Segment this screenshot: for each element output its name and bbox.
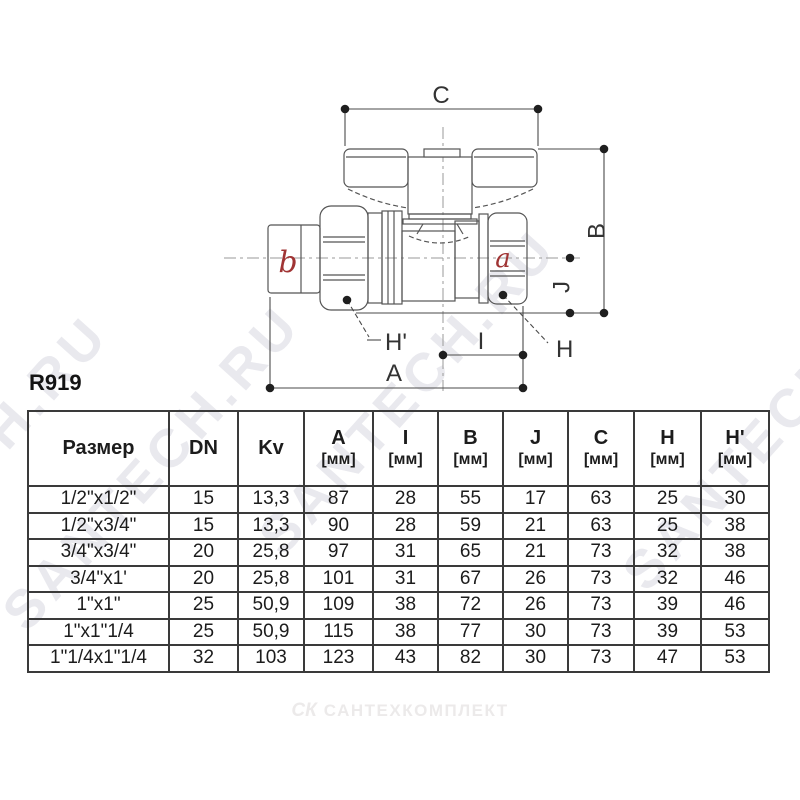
table-cell: 50,9 xyxy=(238,619,304,646)
table-cell: 30 xyxy=(503,619,568,646)
table-cell: 38 xyxy=(701,539,769,566)
footer-watermark-text: САНТЕХКОМПЛЕКТ xyxy=(324,701,509,720)
dimensions-table: РазмерDNKvA[мм]I[мм]B[мм]J[мм]C[мм]H[мм]… xyxy=(27,410,770,673)
column-header: H'[мм] xyxy=(701,411,769,486)
column-header: DN xyxy=(169,411,238,486)
product-code: R919 xyxy=(29,370,82,396)
table-cell: 20 xyxy=(169,539,238,566)
table-cell: 3/4"x3/4" xyxy=(28,539,169,566)
table-cell: 103 xyxy=(238,645,304,672)
table-cell: 38 xyxy=(373,592,438,619)
table-cell: 59 xyxy=(438,513,503,540)
table-cell: 53 xyxy=(701,645,769,672)
column-header: Размер xyxy=(28,411,169,486)
table-cell: 28 xyxy=(373,486,438,513)
dim-label-a: A xyxy=(386,360,402,387)
dim-label-h: H xyxy=(556,336,573,363)
table-cell: 1"1/4x1"1/4 xyxy=(28,645,169,672)
dim-label-h-prime: H' xyxy=(385,329,407,356)
footer-watermark: СКСАНТЕХКОМПЛЕКТ xyxy=(0,700,800,722)
table-cell: 1/2"x3/4" xyxy=(28,513,169,540)
table-cell: 30 xyxy=(503,645,568,672)
table-cell: 13,3 xyxy=(238,513,304,540)
column-header-label: A xyxy=(305,427,372,450)
table-cell: 1"x1" xyxy=(28,592,169,619)
table-cell: 31 xyxy=(373,539,438,566)
column-header: Kv xyxy=(238,411,304,486)
port-label-a: a xyxy=(495,244,511,274)
table-cell: 73 xyxy=(568,592,634,619)
column-header: I[мм] xyxy=(373,411,438,486)
table-row: 1"x1"1/42550,9115387730733953 xyxy=(28,619,769,646)
column-header-unit: [мм] xyxy=(504,451,567,469)
table-cell: 30 xyxy=(701,486,769,513)
column-header-label: H xyxy=(635,427,700,450)
table-cell: 73 xyxy=(568,539,634,566)
table-cell: 46 xyxy=(701,592,769,619)
column-header-unit: [мм] xyxy=(374,451,437,469)
table-cell: 46 xyxy=(701,566,769,593)
table-cell: 28 xyxy=(373,513,438,540)
table-cell: 77 xyxy=(438,619,503,646)
table-cell: 26 xyxy=(503,592,568,619)
table-cell: 25,8 xyxy=(238,566,304,593)
column-header-unit: [мм] xyxy=(305,451,372,469)
table-cell: 82 xyxy=(438,645,503,672)
table-cell: 32 xyxy=(169,645,238,672)
table-cell: 21 xyxy=(503,539,568,566)
table-cell: 50,9 xyxy=(238,592,304,619)
dim-label-b: B xyxy=(584,223,611,239)
table-cell: 3/4"x1' xyxy=(28,566,169,593)
table-cell: 73 xyxy=(568,619,634,646)
table-cell: 31 xyxy=(373,566,438,593)
table-cell: 63 xyxy=(568,513,634,540)
column-header-label: Размер xyxy=(29,437,168,460)
column-header-label: B xyxy=(439,427,502,450)
dim-label-j: J xyxy=(549,281,576,293)
table-cell: 47 xyxy=(634,645,701,672)
table-row: 3/4"x3/4"2025,897316521733238 xyxy=(28,539,769,566)
table-cell: 53 xyxy=(701,619,769,646)
table-cell: 115 xyxy=(304,619,373,646)
table-cell: 13,3 xyxy=(238,486,304,513)
table-cell: 123 xyxy=(304,645,373,672)
table-row: 1/2"x3/4"1513,390285921632538 xyxy=(28,513,769,540)
table-body: 1/2"x1/2"1513,3872855176325301/2"x3/4"15… xyxy=(28,486,769,672)
table-cell: 38 xyxy=(373,619,438,646)
table-header: РазмерDNKvA[мм]I[мм]B[мм]J[мм]C[мм]H[мм]… xyxy=(28,411,769,486)
table-cell: 63 xyxy=(568,486,634,513)
table-cell: 43 xyxy=(373,645,438,672)
footer-watermark-logo: СК xyxy=(291,700,316,721)
table-cell: 67 xyxy=(438,566,503,593)
column-header-unit: [мм] xyxy=(569,451,633,469)
column-header-label: J xyxy=(504,427,567,450)
table-cell: 101 xyxy=(304,566,373,593)
table-cell: 17 xyxy=(503,486,568,513)
column-header-label: Kv xyxy=(239,437,303,460)
column-header: B[мм] xyxy=(438,411,503,486)
column-header-unit: [мм] xyxy=(635,451,700,469)
table-row: 1"x1"2550,9109387226733946 xyxy=(28,592,769,619)
table-cell: 109 xyxy=(304,592,373,619)
table-cell: 32 xyxy=(634,539,701,566)
table-row: 1/2"x1/2"1513,387285517632530 xyxy=(28,486,769,513)
column-header-label: DN xyxy=(170,437,237,460)
column-header-label: I xyxy=(374,427,437,450)
port-label-b: b xyxy=(278,245,297,280)
table-cell: 1/2"x1/2" xyxy=(28,486,169,513)
table-cell: 97 xyxy=(304,539,373,566)
table-cell: 1"x1"1/4 xyxy=(28,619,169,646)
table-cell: 55 xyxy=(438,486,503,513)
column-header: J[мм] xyxy=(503,411,568,486)
table-cell: 39 xyxy=(634,592,701,619)
table-row: 3/4"x1'2025,8101316726733246 xyxy=(28,566,769,593)
table-cell: 39 xyxy=(634,619,701,646)
column-header-unit: [мм] xyxy=(439,451,502,469)
table-header-row: РазмерDNKvA[мм]I[мм]B[мм]J[мм]C[мм]H[мм]… xyxy=(28,411,769,486)
table-cell: 15 xyxy=(169,513,238,540)
table-cell: 65 xyxy=(438,539,503,566)
table-cell: 25 xyxy=(169,592,238,619)
column-header-unit: [мм] xyxy=(702,451,768,469)
column-header-label: C xyxy=(569,427,633,450)
table-cell: 21 xyxy=(503,513,568,540)
table-cell: 25,8 xyxy=(238,539,304,566)
table-cell: 73 xyxy=(568,645,634,672)
column-header: H[мм] xyxy=(634,411,701,486)
column-header: A[мм] xyxy=(304,411,373,486)
table-cell: 73 xyxy=(568,566,634,593)
table-cell: 38 xyxy=(701,513,769,540)
table-cell: 25 xyxy=(634,513,701,540)
table-cell: 90 xyxy=(304,513,373,540)
table-cell: 20 xyxy=(169,566,238,593)
table-cell: 87 xyxy=(304,486,373,513)
table-cell: 25 xyxy=(169,619,238,646)
dim-label-i: I xyxy=(478,328,485,355)
table-cell: 15 xyxy=(169,486,238,513)
table-row: 1"1/4x1"1/432103123438230734753 xyxy=(28,645,769,672)
table-cell: 32 xyxy=(634,566,701,593)
valve-body-art xyxy=(268,149,537,310)
column-header-label: H' xyxy=(702,427,768,450)
valve-technical-drawing: C B J A I H' H b a xyxy=(0,0,800,420)
table-cell: 25 xyxy=(634,486,701,513)
table-cell: 26 xyxy=(503,566,568,593)
column-header: C[мм] xyxy=(568,411,634,486)
table-cell: 72 xyxy=(438,592,503,619)
dim-label-c: C xyxy=(432,82,449,109)
